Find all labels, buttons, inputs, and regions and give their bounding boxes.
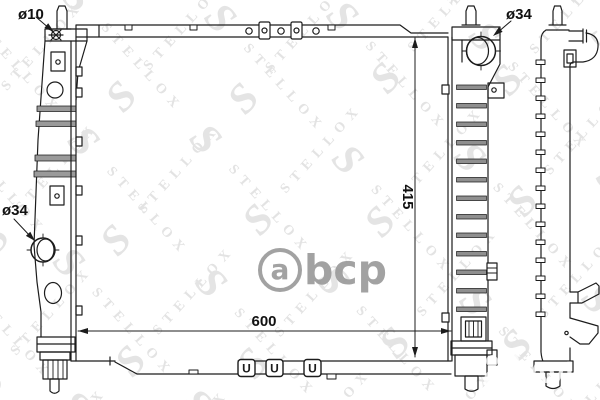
drain-plug [37,337,75,393]
sensor-boss-upper [51,52,65,71]
avito-circle-medium [501,352,519,370]
dim-filler-label: ø10 [18,6,44,23]
core-bottom-rail [71,357,451,374]
side-view [534,6,599,389]
dim-width-600: 600 [78,313,451,334]
abcp-text: bcp [304,250,387,291]
leader-dia10: ø10 [18,6,54,32]
sensor-boss-lower [50,186,64,205]
dim-width-label: 600 [251,313,276,330]
tank-left-edge [34,41,45,337]
top-vent-holes [246,28,319,34]
connector-block [461,317,486,341]
avito-text: Avito [527,357,600,391]
abcp-watermark: a bcp [258,248,387,292]
filler-neck [57,6,67,29]
right-tank-ribs [457,85,487,312]
tank-rib-bands [34,106,76,177]
side-pipe [564,29,598,67]
dim-height-415: 415 [399,38,418,357]
avito-circle-lower [507,373,521,387]
tank-opening-ellipse [45,283,62,304]
outlet-pipe-right [462,32,501,70]
dim-height-label: 415 [399,184,416,209]
side-neck [549,6,566,25]
tank-opening-circle [47,82,63,98]
avito-circle-large [484,369,506,391]
u-clip-letter: U [270,362,279,376]
filler-cap-bolt [49,30,63,40]
side-ribs [536,60,545,317]
u-clip-letter: U [242,362,251,376]
front-view: U U U [27,6,504,393]
radiator-drawing: U U U [0,0,600,400]
avito-circle-small [486,355,498,367]
side-fitting [487,263,497,280]
tank-clip-tabs [76,67,82,315]
abcp-circled-a: a [258,248,302,292]
bottom-u-clips: U U U [238,360,321,377]
right-neck [462,6,480,25]
dim-inlet-label: ø34 [2,202,29,219]
radiator-technical-drawing-page: SSTELLOXSSTELLOXSSTELLOXSSTELLOXSSTELLOX… [0,0,600,400]
side-bracket-upper [570,283,599,303]
dim-outlet-label: ø34 [506,6,533,23]
leader-dia34-right: ø34 [493,6,533,36]
left-tank [27,6,87,393]
avito-logo-circles [484,352,522,396]
side-bracket-lower [565,318,598,344]
core-left-edge [71,37,76,361]
avito-watermark: Avito [484,352,600,396]
right-tank [442,6,504,391]
u-clip-letter: U [308,362,317,376]
leader-dia34-left: ø34 [2,202,35,241]
